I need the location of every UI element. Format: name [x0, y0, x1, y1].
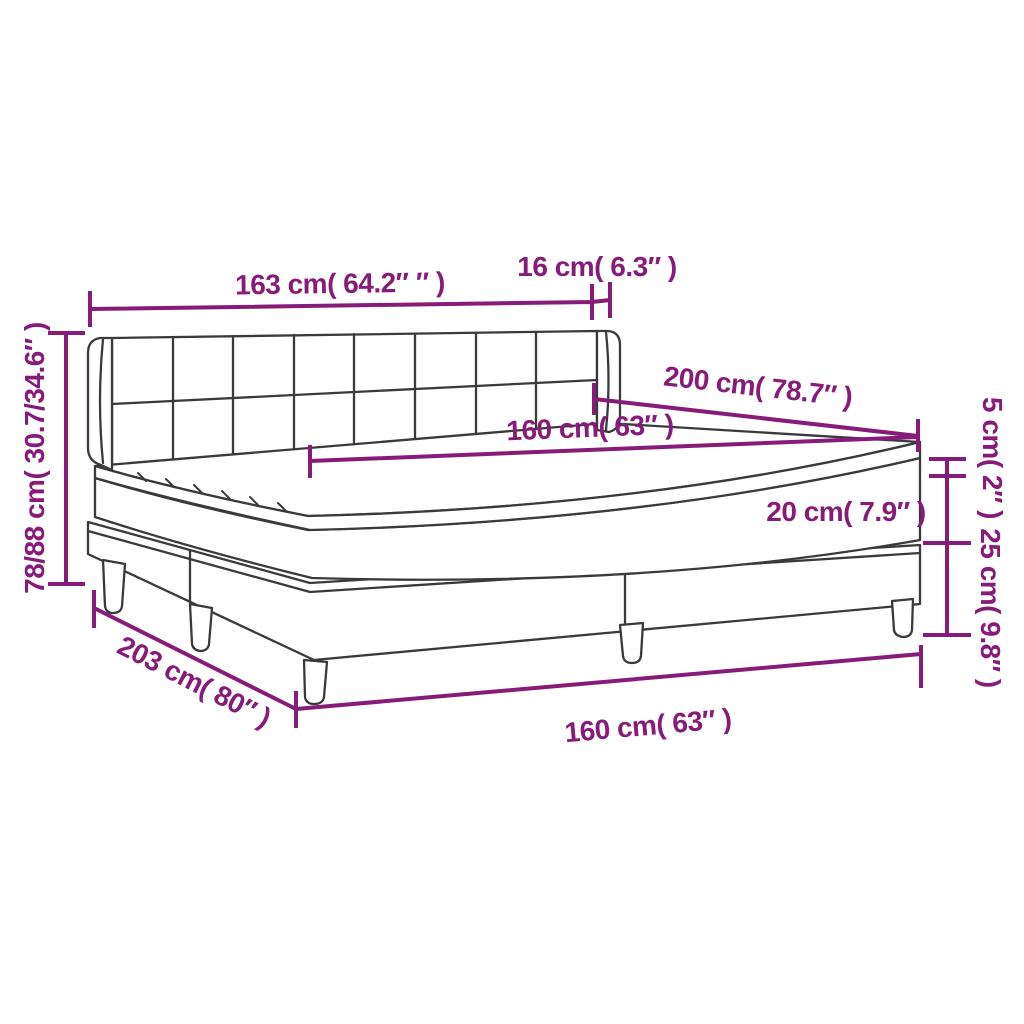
dim-label-mattress-thickness: 20 cm( 7.9″ ): [766, 498, 925, 526]
dim-label-headboard-width: 163 cm( 64.2″ ″ ): [235, 269, 445, 300]
bed-leg: [304, 660, 327, 704]
dim-label-headboard-side-depth: 16 cm( 6.3″ ): [517, 253, 676, 281]
dim-label-topper-thickness: 5 cm( 2″ ): [978, 397, 1006, 519]
dim-label-overall-height: 78/88 cm( 30.7/34.6″ ): [21, 322, 49, 594]
dim-height-bracket-right: [923, 459, 971, 635]
bed-leg: [892, 599, 913, 637]
bed-leg: [190, 604, 212, 651]
dim-label-mattress-width: 160 cm( 63″ ): [506, 411, 674, 446]
dim-wing-depth-line: [592, 282, 610, 318]
bed-leg: [620, 623, 643, 663]
dim-base-width-line: [296, 645, 921, 709]
diagram-canvas: 163 cm( 64.2″ ″ ) 16 cm( 6.3″ ) 200 cm( …: [0, 0, 1024, 1024]
dim-label-base-height: 25 cm( 9.8″ ): [976, 528, 1004, 687]
dim-overall-height-line: [48, 333, 85, 584]
bed-leg: [103, 560, 125, 613]
